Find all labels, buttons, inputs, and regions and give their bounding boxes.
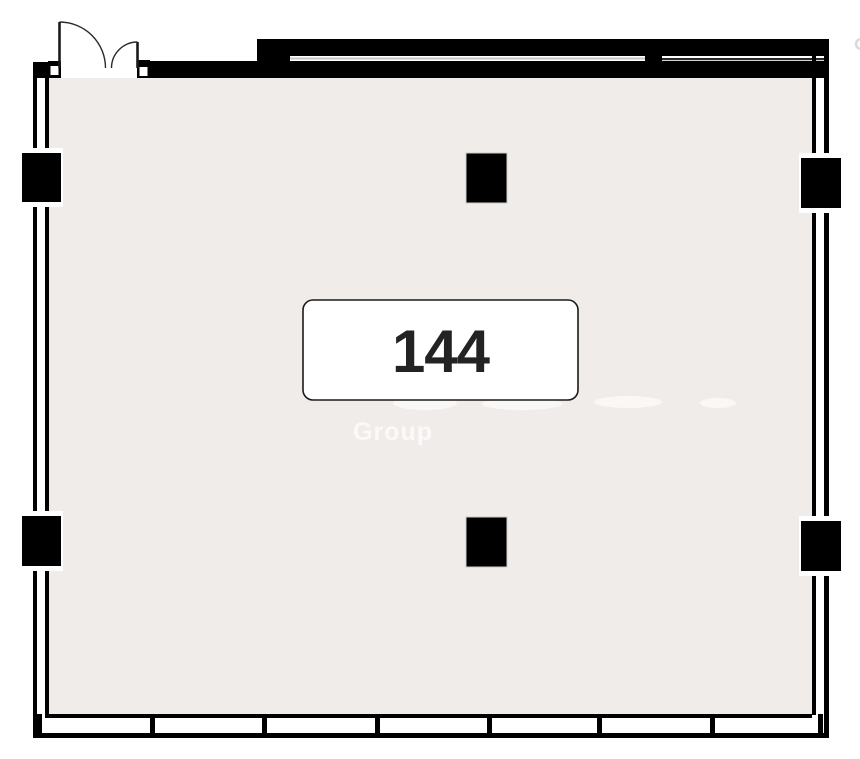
edge-artifact bbox=[856, 39, 860, 49]
door-swing-arc-left bbox=[60, 22, 106, 68]
watermark-text: Group bbox=[353, 418, 433, 446]
column-right-top bbox=[801, 158, 841, 208]
window-mullion bbox=[818, 714, 823, 738]
column-center-top bbox=[466, 153, 507, 203]
wall-top-gap-line-left bbox=[290, 58, 645, 60]
door-swing-arc-right bbox=[112, 42, 138, 68]
watermark-smudge bbox=[700, 398, 736, 408]
column-left-top bbox=[22, 153, 61, 202]
window-mullion bbox=[37, 714, 42, 738]
wall-right-outer bbox=[824, 39, 829, 738]
floor-plan-canvas: Group 144 bbox=[0, 0, 860, 759]
window-mullion bbox=[262, 714, 267, 738]
window-sill-inner bbox=[45, 714, 812, 718]
floor-plan-viewer: Group 144 bbox=[0, 0, 860, 759]
wall-top-gap-line-right bbox=[662, 58, 824, 60]
window-mullion bbox=[487, 714, 492, 738]
window-mullion bbox=[375, 714, 380, 738]
wall-top-connector-mid bbox=[645, 39, 662, 78]
room-label[interactable]: 144 bbox=[303, 300, 578, 400]
window-mullion bbox=[597, 714, 602, 738]
room-number: 144 bbox=[392, 318, 491, 385]
watermark-smudge bbox=[594, 396, 662, 408]
column-right-bottom bbox=[801, 521, 841, 571]
entry-door bbox=[60, 22, 138, 68]
column-left-bottom bbox=[22, 516, 61, 566]
column-center-bottom bbox=[466, 517, 507, 567]
wall-top-connector-left bbox=[257, 39, 290, 78]
wall-top-lower-bar bbox=[148, 61, 824, 78]
window-mullion bbox=[150, 714, 155, 738]
wall-top-left-stub bbox=[33, 62, 50, 78]
window-mullion bbox=[710, 714, 715, 738]
wall-top-upper-bar bbox=[257, 39, 829, 56]
